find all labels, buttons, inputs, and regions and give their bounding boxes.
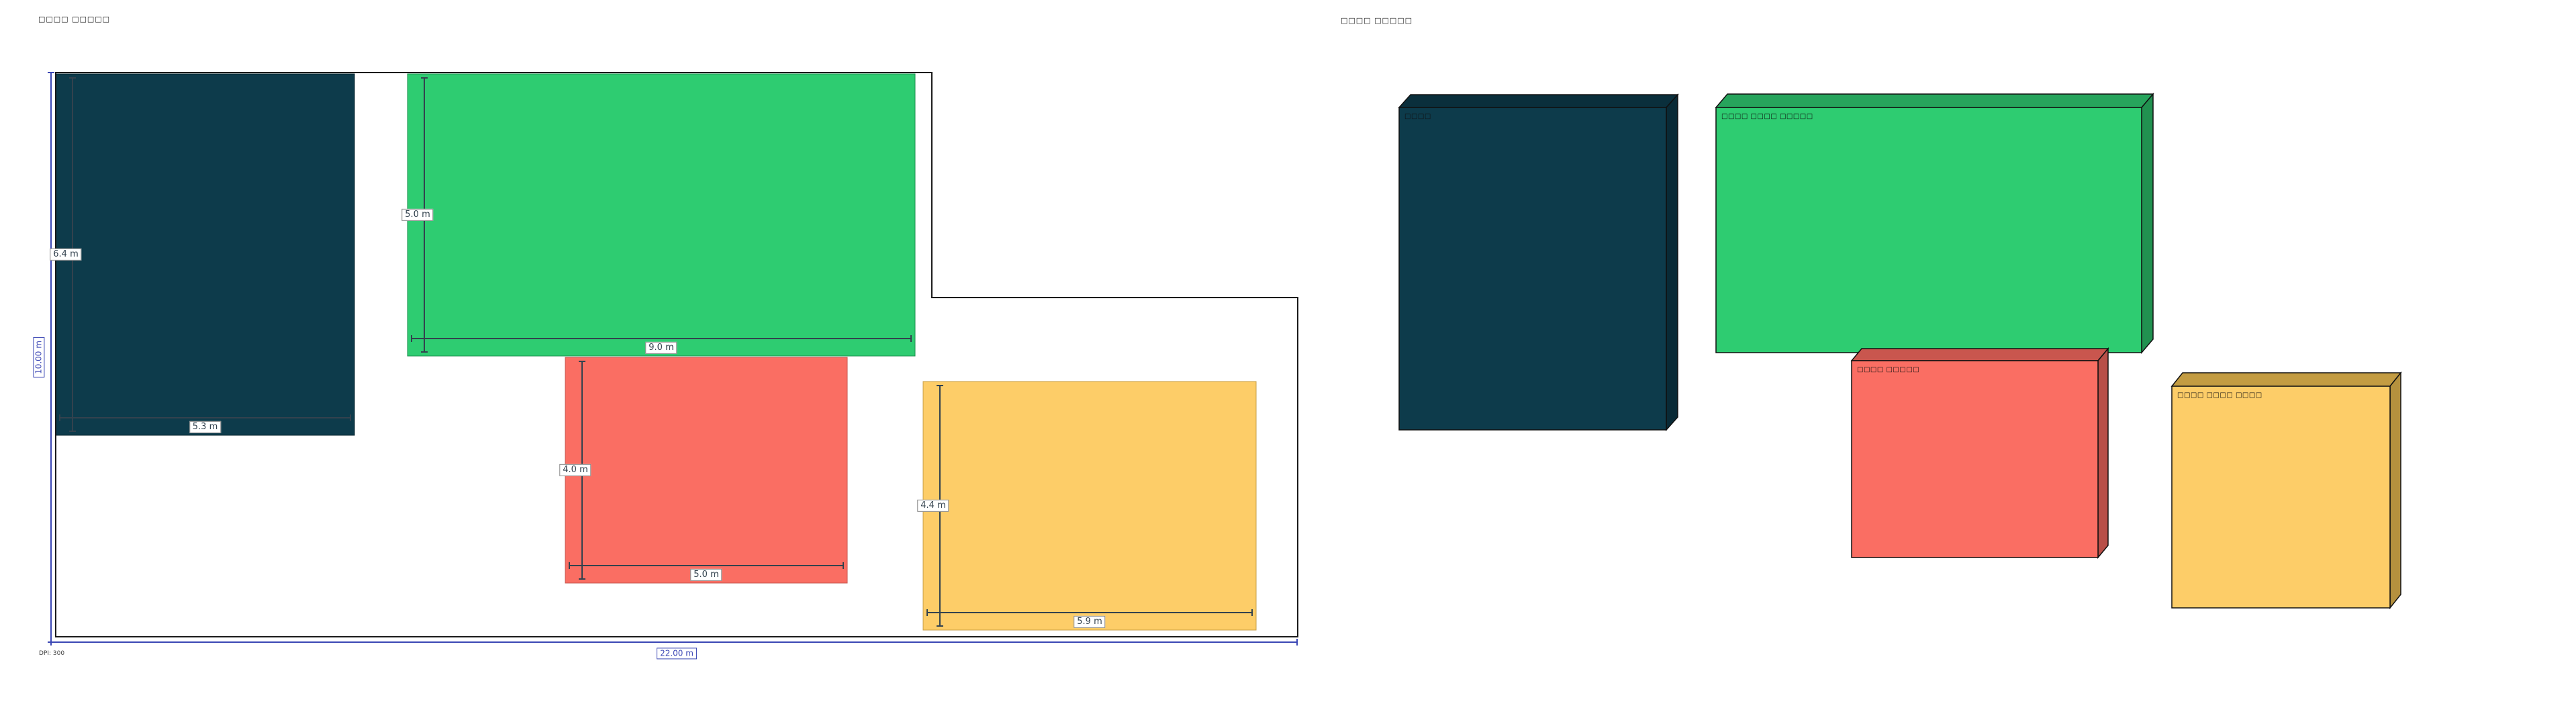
iso-box-4-front-face [2172,386,2390,608]
iso-box-2-label: □□□□ □□□□ □□□□□ [1721,113,1813,120]
iso-box-3-label: □□□□ □□□□□ [1857,366,1919,373]
iso-box-2-side-face [2142,94,2153,353]
iso-box-4-side-face [2390,373,2401,608]
plan-panel-title: □□□□ □□□□□ [38,15,110,24]
dpi-note: DPI: 300 [39,650,64,657]
plan-room-3 [565,357,847,583]
plan-shapes-layer [0,0,2576,712]
site-width-label: 22.00 m [657,648,697,659]
plan-room-2 [408,74,915,356]
site-height-label: 10.00 m [33,337,44,377]
iso-box-2-top-face [1716,94,2153,107]
plan-room-1-height-label: 6.4 m [50,249,81,261]
iso-box-3-side-face [2098,349,2108,558]
iso-box-1-top-face [1399,95,1678,107]
iso-box-4-top-face [2172,373,2401,386]
plan-room-4-height-label: 4.4 m [917,500,949,512]
plan-room-3-height-label: 4.0 m [559,464,591,476]
plan-room-4-width-label: 5.9 m [1074,616,1105,628]
plan-room-4 [923,382,1256,630]
iso-box-4-label: □□□□ □□□□ □□□□ [2177,392,2262,399]
iso-box-3-front-face [1852,361,2098,558]
plan-room-1-width-label: 5.3 m [189,421,221,433]
iso-box-1-label: □□□□ [1404,113,1431,120]
iso-box-1-front-face [1399,107,1666,430]
iso-panel-title: □□□□ □□□□□ [1341,16,1413,25]
plan-room-1 [56,74,354,435]
plan-room-3-width-label: 5.0 m [690,569,722,581]
iso-box-3-top-face [1852,349,2108,361]
iso-box-2-front-face [1716,107,2142,353]
plan-room-2-width-label: 9.0 m [645,342,677,354]
floorplan-canvas: 6.4 m5.3 m5.0 m9.0 m4.0 m5.0 m4.4 m5.9 m… [0,0,2576,712]
plan-room-2-height-label: 5.0 m [401,209,433,221]
iso-box-1-side-face [1666,95,1678,430]
